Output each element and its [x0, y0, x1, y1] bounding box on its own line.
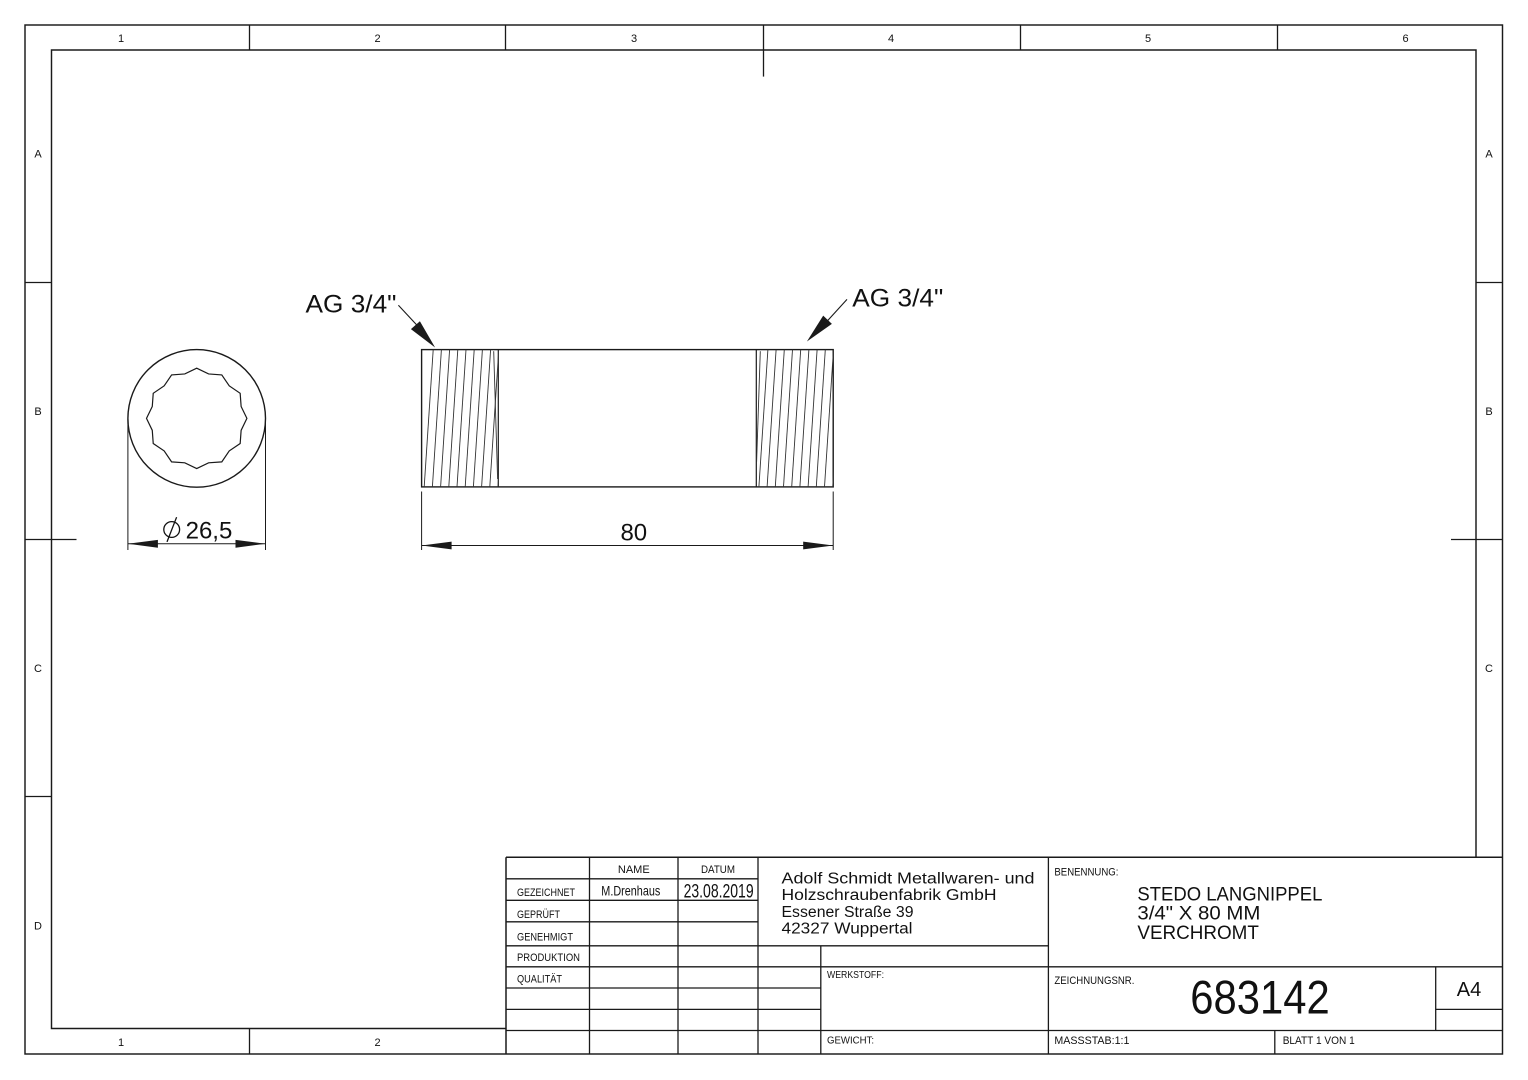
svg-text:AG 3/4": AG 3/4": [852, 285, 943, 313]
svg-text:6: 6: [1402, 33, 1408, 45]
svg-text:Adolf Schmidt Metallwaren- und: Adolf Schmidt Metallwaren- und: [782, 871, 1035, 888]
svg-text:1: 1: [118, 33, 124, 45]
svg-text:AG 3/4": AG 3/4": [306, 291, 397, 319]
svg-text:WERKSTOFF:: WERKSTOFF:: [827, 969, 884, 981]
svg-text:D: D: [34, 920, 42, 932]
svg-text:GEWICHT:: GEWICHT:: [827, 1035, 874, 1047]
svg-text:C: C: [34, 663, 42, 675]
svg-text:683142: 683142: [1190, 971, 1329, 1024]
svg-text:B: B: [34, 406, 41, 418]
svg-text:PRODUKTION: PRODUKTION: [517, 952, 580, 964]
svg-text:GEPRÜFT: GEPRÜFT: [517, 909, 560, 921]
svg-text:A: A: [34, 149, 42, 161]
svg-text:23.08.2019: 23.08.2019: [684, 882, 754, 903]
svg-text:A4: A4: [1457, 979, 1481, 1001]
svg-text:80: 80: [620, 520, 647, 547]
svg-text:1: 1: [118, 1037, 124, 1049]
svg-text:B: B: [1485, 406, 1492, 418]
svg-text:3/4" X 80 MM: 3/4" X 80 MM: [1137, 904, 1260, 925]
svg-text:MASSSTAB:1:1: MASSSTAB:1:1: [1054, 1035, 1129, 1047]
svg-text:42327 Wuppertal: 42327 Wuppertal: [782, 921, 913, 938]
svg-text:C: C: [1485, 663, 1493, 675]
svg-text:DATUM: DATUM: [701, 864, 735, 876]
svg-text:STEDO LANGNIPPEL: STEDO LANGNIPPEL: [1137, 885, 1322, 906]
svg-text:QUALITÄT: QUALITÄT: [517, 974, 562, 986]
svg-text:26,5: 26,5: [186, 518, 233, 545]
svg-text:NAME: NAME: [618, 864, 650, 876]
svg-text:GEZEICHNET: GEZEICHNET: [517, 887, 575, 899]
svg-text:3: 3: [631, 33, 637, 45]
svg-text:VERCHROMT: VERCHROMT: [1137, 923, 1259, 944]
svg-text:5: 5: [1145, 33, 1151, 45]
svg-text:BLATT 1 VON 1: BLATT 1 VON 1: [1283, 1035, 1355, 1047]
svg-text:M.Drenhaus: M.Drenhaus: [601, 883, 660, 899]
svg-text:4: 4: [888, 33, 894, 45]
svg-text:Holzschraubenfabrik GmbH: Holzschraubenfabrik GmbH: [782, 887, 997, 904]
svg-text:2: 2: [374, 1037, 380, 1049]
svg-text:BENENNUNG:: BENENNUNG:: [1054, 867, 1118, 879]
svg-text:Essener Straße 39: Essener Straße 39: [782, 904, 914, 921]
svg-text:GENEHMIGT: GENEHMIGT: [517, 931, 573, 943]
svg-text:2: 2: [374, 33, 380, 45]
svg-text:A: A: [1485, 149, 1493, 161]
svg-text:ZEICHNUNGSNR.: ZEICHNUNGSNR.: [1054, 975, 1134, 987]
